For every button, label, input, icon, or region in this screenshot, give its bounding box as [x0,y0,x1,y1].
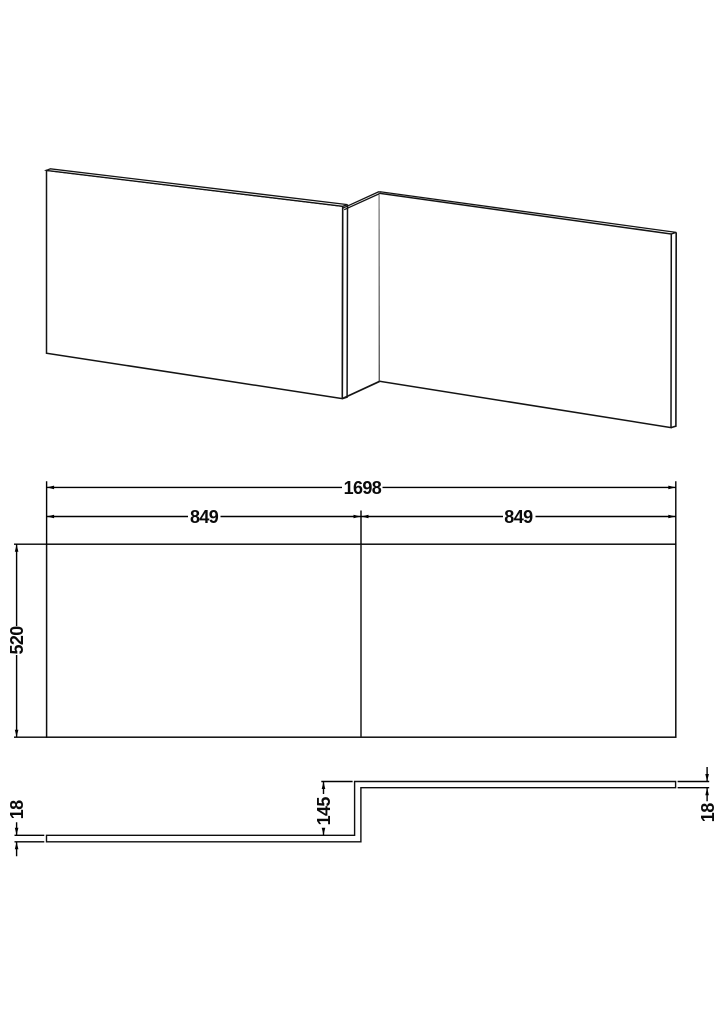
svg-text:849: 849 [504,507,533,527]
svg-text:520: 520 [7,626,27,655]
svg-text:849: 849 [190,507,219,527]
svg-text:145: 145 [314,797,334,826]
svg-text:18: 18 [698,803,718,822]
svg-text:1698: 1698 [344,478,382,498]
svg-text:18: 18 [7,800,27,819]
